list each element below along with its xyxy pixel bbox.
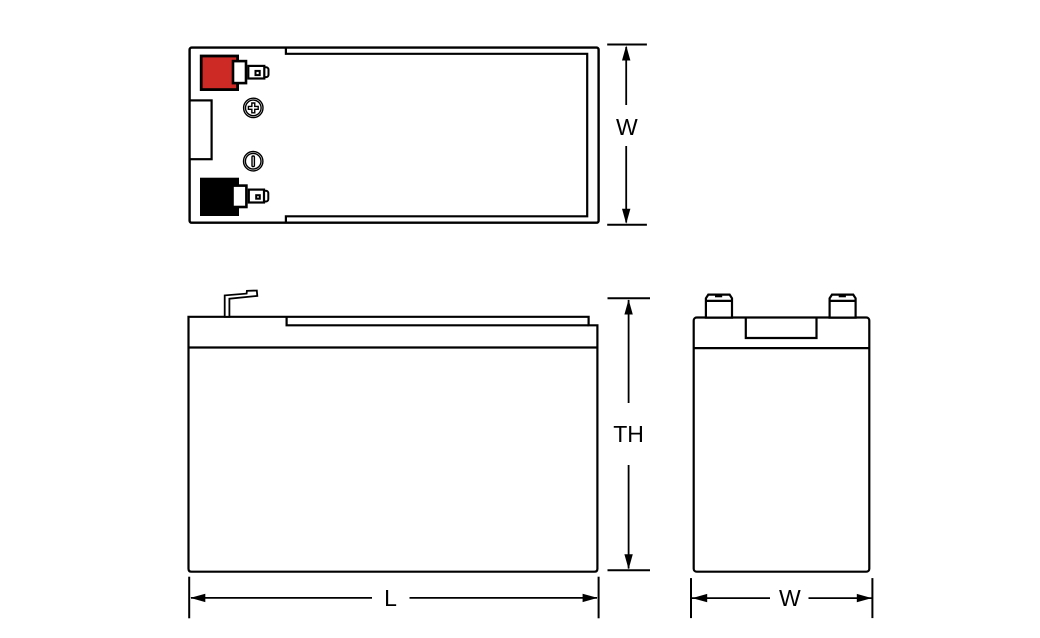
svg-text:W: W	[779, 585, 801, 611]
svg-text:L: L	[384, 585, 397, 611]
svg-text:TH: TH	[613, 421, 644, 447]
svg-text:W: W	[616, 114, 638, 140]
